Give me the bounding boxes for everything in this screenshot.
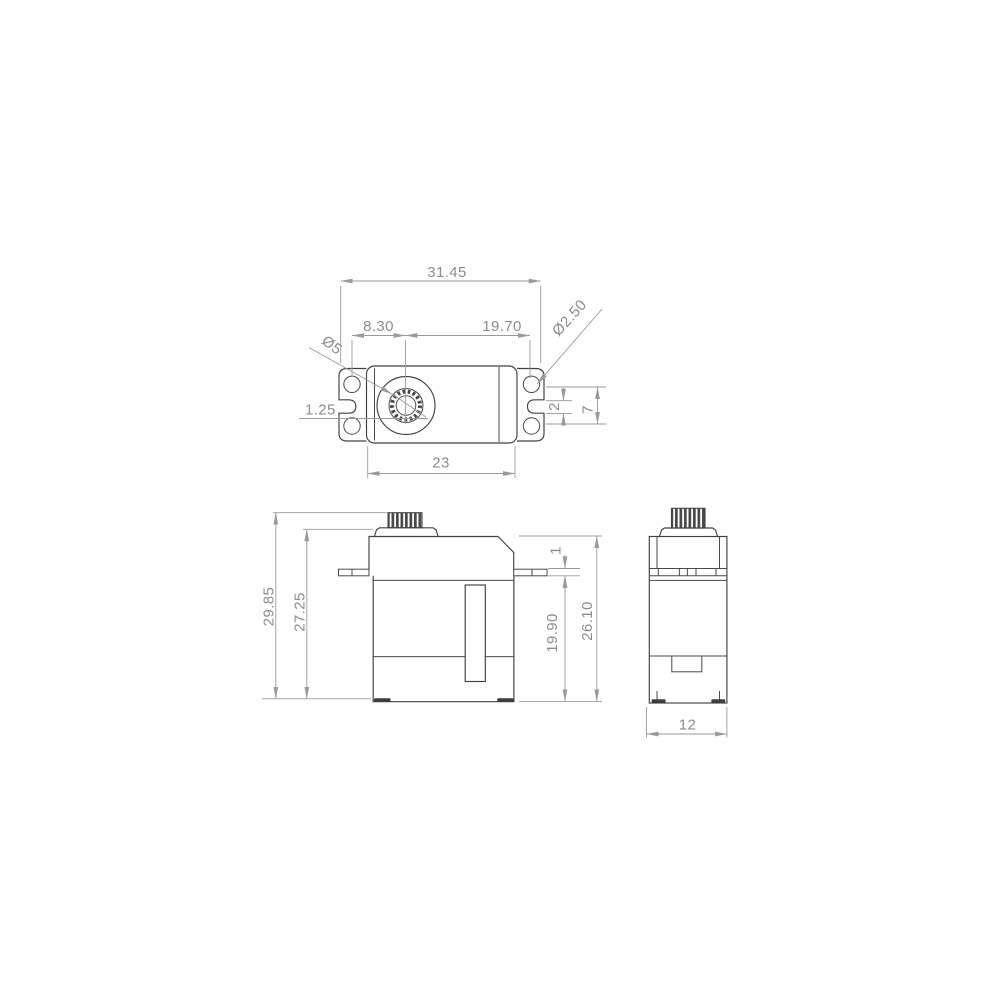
dim-label-slot-width: 2: [546, 402, 563, 411]
dim-label-offset: 1.25: [305, 402, 336, 419]
dim-label-case-height: 26.10: [579, 601, 596, 641]
dim-label-depth: 12: [679, 717, 697, 734]
foot-pad: [711, 699, 725, 703]
dim-label-hole-spacing: 7: [580, 405, 597, 414]
dim-label-overall-width: 31.45: [427, 264, 467, 281]
foot-pad: [497, 698, 514, 702]
dim-label-height-no-spline: 27.25: [292, 592, 309, 632]
dim-label-flange-thickness: 1: [548, 546, 565, 555]
background: [0, 0, 1000, 1000]
foot-pad: [652, 699, 666, 703]
foot-pad: [374, 698, 391, 702]
dim-label-body-width: 23: [432, 455, 450, 472]
servo-dimension-drawing: 31.45 8.30 19.70 Ø2.50 Ø5 1.25 23 2 7: [0, 0, 1000, 1000]
spline-gear-side: [672, 508, 706, 528]
spline-gear: [388, 513, 422, 528]
dim-label-hole-to-shaft: 8.30: [363, 318, 394, 335]
dim-label-lower-height: 19.90: [544, 613, 561, 653]
dim-label-shaft-to-hole: 19.70: [482, 318, 522, 335]
drawing-canvas: 31.45 8.30 19.70 Ø2.50 Ø5 1.25 23 2 7: [0, 0, 1000, 1000]
dim-label-total-height: 29.85: [261, 587, 278, 627]
